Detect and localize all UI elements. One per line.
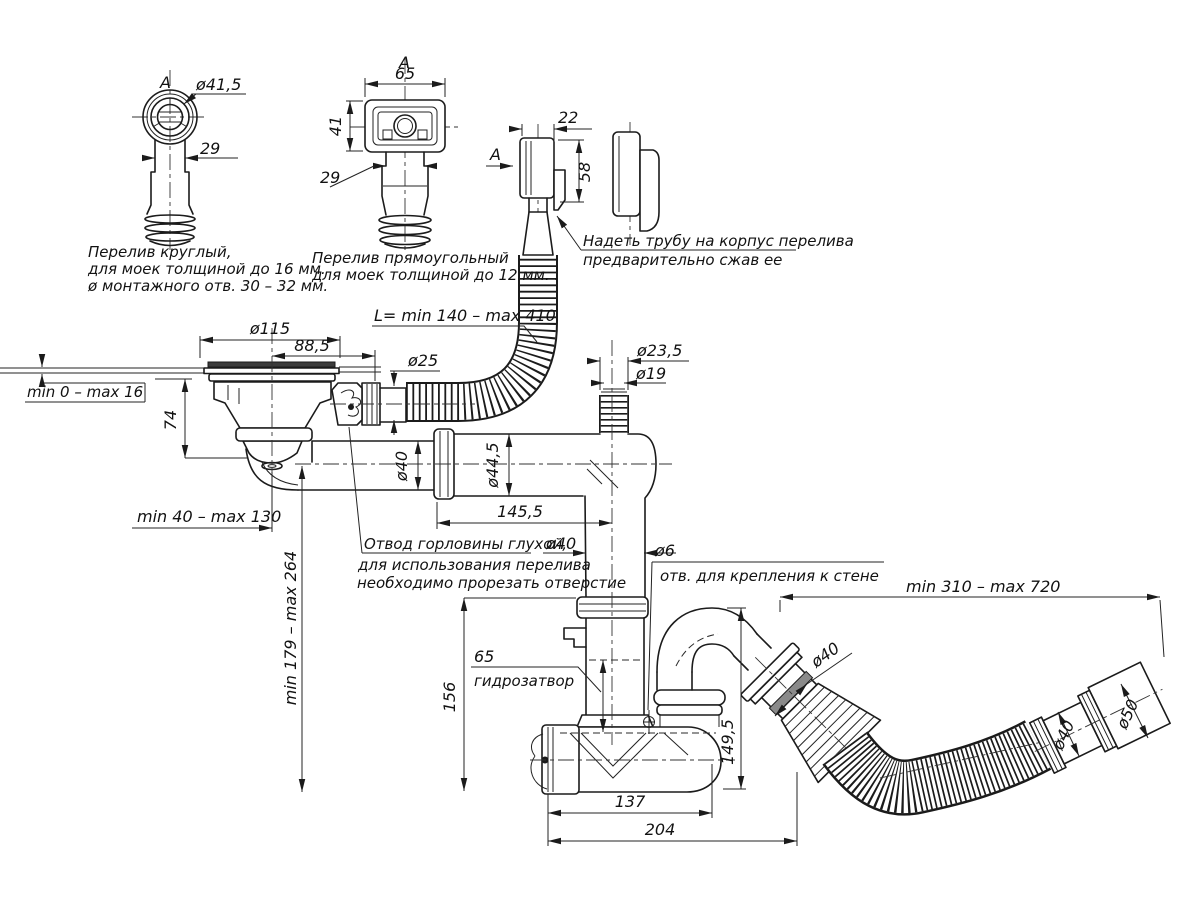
rect-caption-2: для моек толщиной до 12 мм. . (311, 266, 559, 284)
label-water-seal: гидрозатвор (474, 672, 574, 690)
note-blind-outlet-1: Отвод горловины глухой, (364, 535, 567, 553)
dim-riser-dia: ø40 (545, 534, 576, 553)
dim-outlet-height: 149,5 (718, 719, 737, 765)
note-wall-mount: отв. для крепления к стене (660, 567, 879, 585)
dim-outlet-dia: ø40 (807, 638, 843, 671)
siphon-body (531, 608, 1177, 794)
note-blind-outlet-2: для использования перелива (357, 556, 591, 574)
dim-tube-dia: ø40 (392, 451, 411, 482)
dim-inlet-outer-dia: ø23,5 (636, 341, 682, 360)
dim-sink-thickness: min 0 – max 16 (27, 383, 143, 401)
dim-outlet-reach: min 310 – max 720 (906, 577, 1060, 596)
detached-overflow-figure (613, 122, 659, 245)
detail-side-overflow: A 22 58 Надеть трубу на корпус перелива … (486, 108, 854, 269)
side-depth-label: 22 (558, 108, 578, 127)
dim-inlet-inner-dia: ø19 (635, 364, 666, 383)
note-blind-outlet-3: необходимо прорезать отверстие (357, 574, 626, 592)
side-height-label: 58 (575, 162, 594, 182)
dim-tube-dia2: ø44,5 (483, 442, 502, 488)
drawing-page: A ø41,5 29 Перелив круглый, для моек тол… (0, 0, 1200, 900)
inlet-stub-corrugation (601, 389, 627, 433)
dim-flange-dia: ø115 (249, 319, 290, 338)
side-note-1: Надеть трубу на корпус перелива (583, 232, 854, 250)
side-view-label: A (489, 145, 501, 164)
detail-round-overflow: A ø41,5 29 Перелив круглый, для моек тол… (87, 70, 328, 295)
round-dia-label: ø41,5 (195, 75, 241, 94)
dim-flange-offset: 88,5 (294, 336, 330, 355)
dim-overflow-pipe-dia: ø25 (407, 351, 438, 370)
riser-pipe (564, 597, 653, 727)
rect-width-label: 65 (395, 64, 415, 83)
dim-seal-height: 65 (474, 647, 494, 666)
outlet-flex-hose (845, 745, 1038, 788)
dim-tube-length: 145,5 (497, 502, 543, 521)
rect-neck-label: 29 (320, 168, 340, 187)
round-caption-1: Перелив круглый, (88, 243, 232, 261)
round-view-label: A (159, 73, 171, 92)
dim-overflow-length: L= min 140 – max 410 (374, 306, 556, 325)
round-neck-label: 29 (200, 139, 220, 158)
dim-body-height: 156 (440, 682, 459, 713)
sink-strainer (0, 362, 381, 490)
rect-height-label: 41 (326, 116, 345, 136)
round-caption-3: ø монтажного отв. 30 – 32 мм. (87, 277, 328, 295)
dim-wall-hole-dia: ø6 (654, 541, 675, 560)
dim-overall-length: 204 (645, 820, 676, 839)
dim-strainer-height: 74 (161, 410, 180, 430)
dim-vert-adjust: min 179 – max 264 (281, 551, 300, 705)
round-caption-2: для моек толщиной до 16 мм. (87, 260, 326, 278)
technical-drawing: A ø41,5 29 Перелив круглый, для моек тол… (0, 0, 1200, 900)
dim-horiz-adjust: min 40 – max 130 (137, 507, 281, 526)
rect-caption-1: Перелив прямоугольный (312, 249, 509, 267)
dim-body-length: 137 (615, 792, 646, 811)
side-note-2: предварительно сжав ее (583, 251, 782, 269)
